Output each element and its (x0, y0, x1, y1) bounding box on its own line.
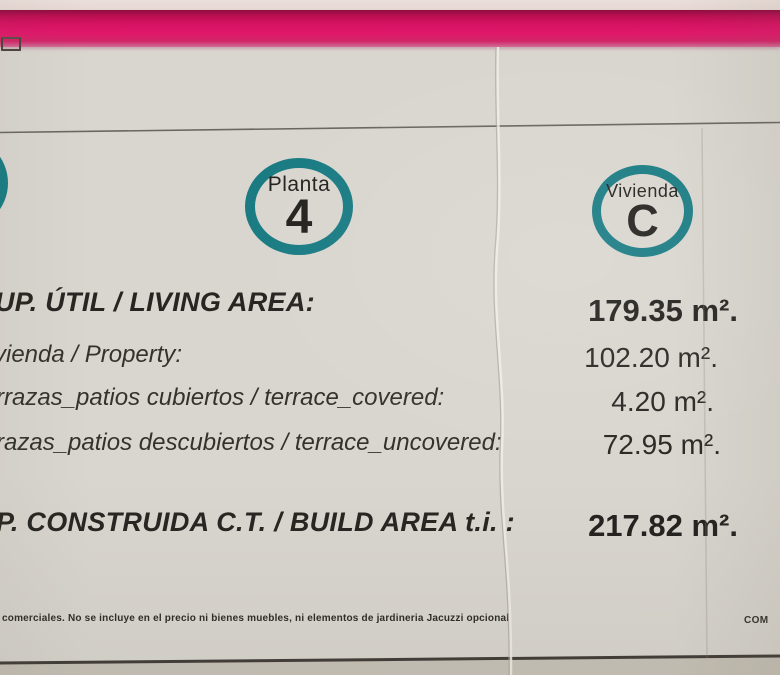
dwelling-badge: Vivienda C (592, 165, 693, 257)
top-rule-line (0, 123, 780, 133)
photo-shading-overlay (0, 0, 780, 675)
row-value-build-area: 217.82 m². (588, 508, 738, 544)
row-value-terrace-covered: 4.20 m². (611, 386, 714, 418)
fold-crease-shadow (494, 47, 509, 675)
disclaimer-text: comerciales. No se incluye en el precio … (2, 613, 509, 624)
property-spec-sheet-photo: Planta 4 Vivienda C UP. ÚTIL / LIVING AR… (0, 0, 780, 675)
creases-and-rules (0, 0, 780, 675)
footer-right-text: COM (744, 615, 769, 626)
row-label-living-area: UP. ÚTIL / LIVING AREA: (0, 287, 315, 318)
row-label-property: vienda / Property: (0, 341, 182, 369)
staple-mark (1, 37, 21, 51)
bottom-rule-line (0, 656, 780, 663)
row-label-terrace-uncovered: razas_patios descubiertos / terrace_unco… (0, 429, 502, 457)
row-value-property: 102.20 m². (584, 342, 718, 374)
row-label-terrace-covered: rrazas_patios cubiertos / terrace_covere… (0, 384, 444, 412)
floor-badge: Planta 4 (245, 158, 353, 255)
row-label-build-area: P. CONSTRUIDA C.T. / BUILD AREA t.i. : (0, 507, 515, 538)
floor-badge-value: 4 (286, 195, 313, 241)
partial-badge-ring (0, 136, 8, 230)
bottom-paper-band (0, 657, 780, 675)
fold-crease-highlight (496, 47, 511, 675)
magenta-folder-stripe (0, 10, 780, 47)
dwelling-badge-value: C (626, 200, 659, 243)
row-value-terrace-uncovered: 72.95 m². (603, 429, 721, 461)
row-value-living-area: 179.35 m². (588, 293, 738, 329)
